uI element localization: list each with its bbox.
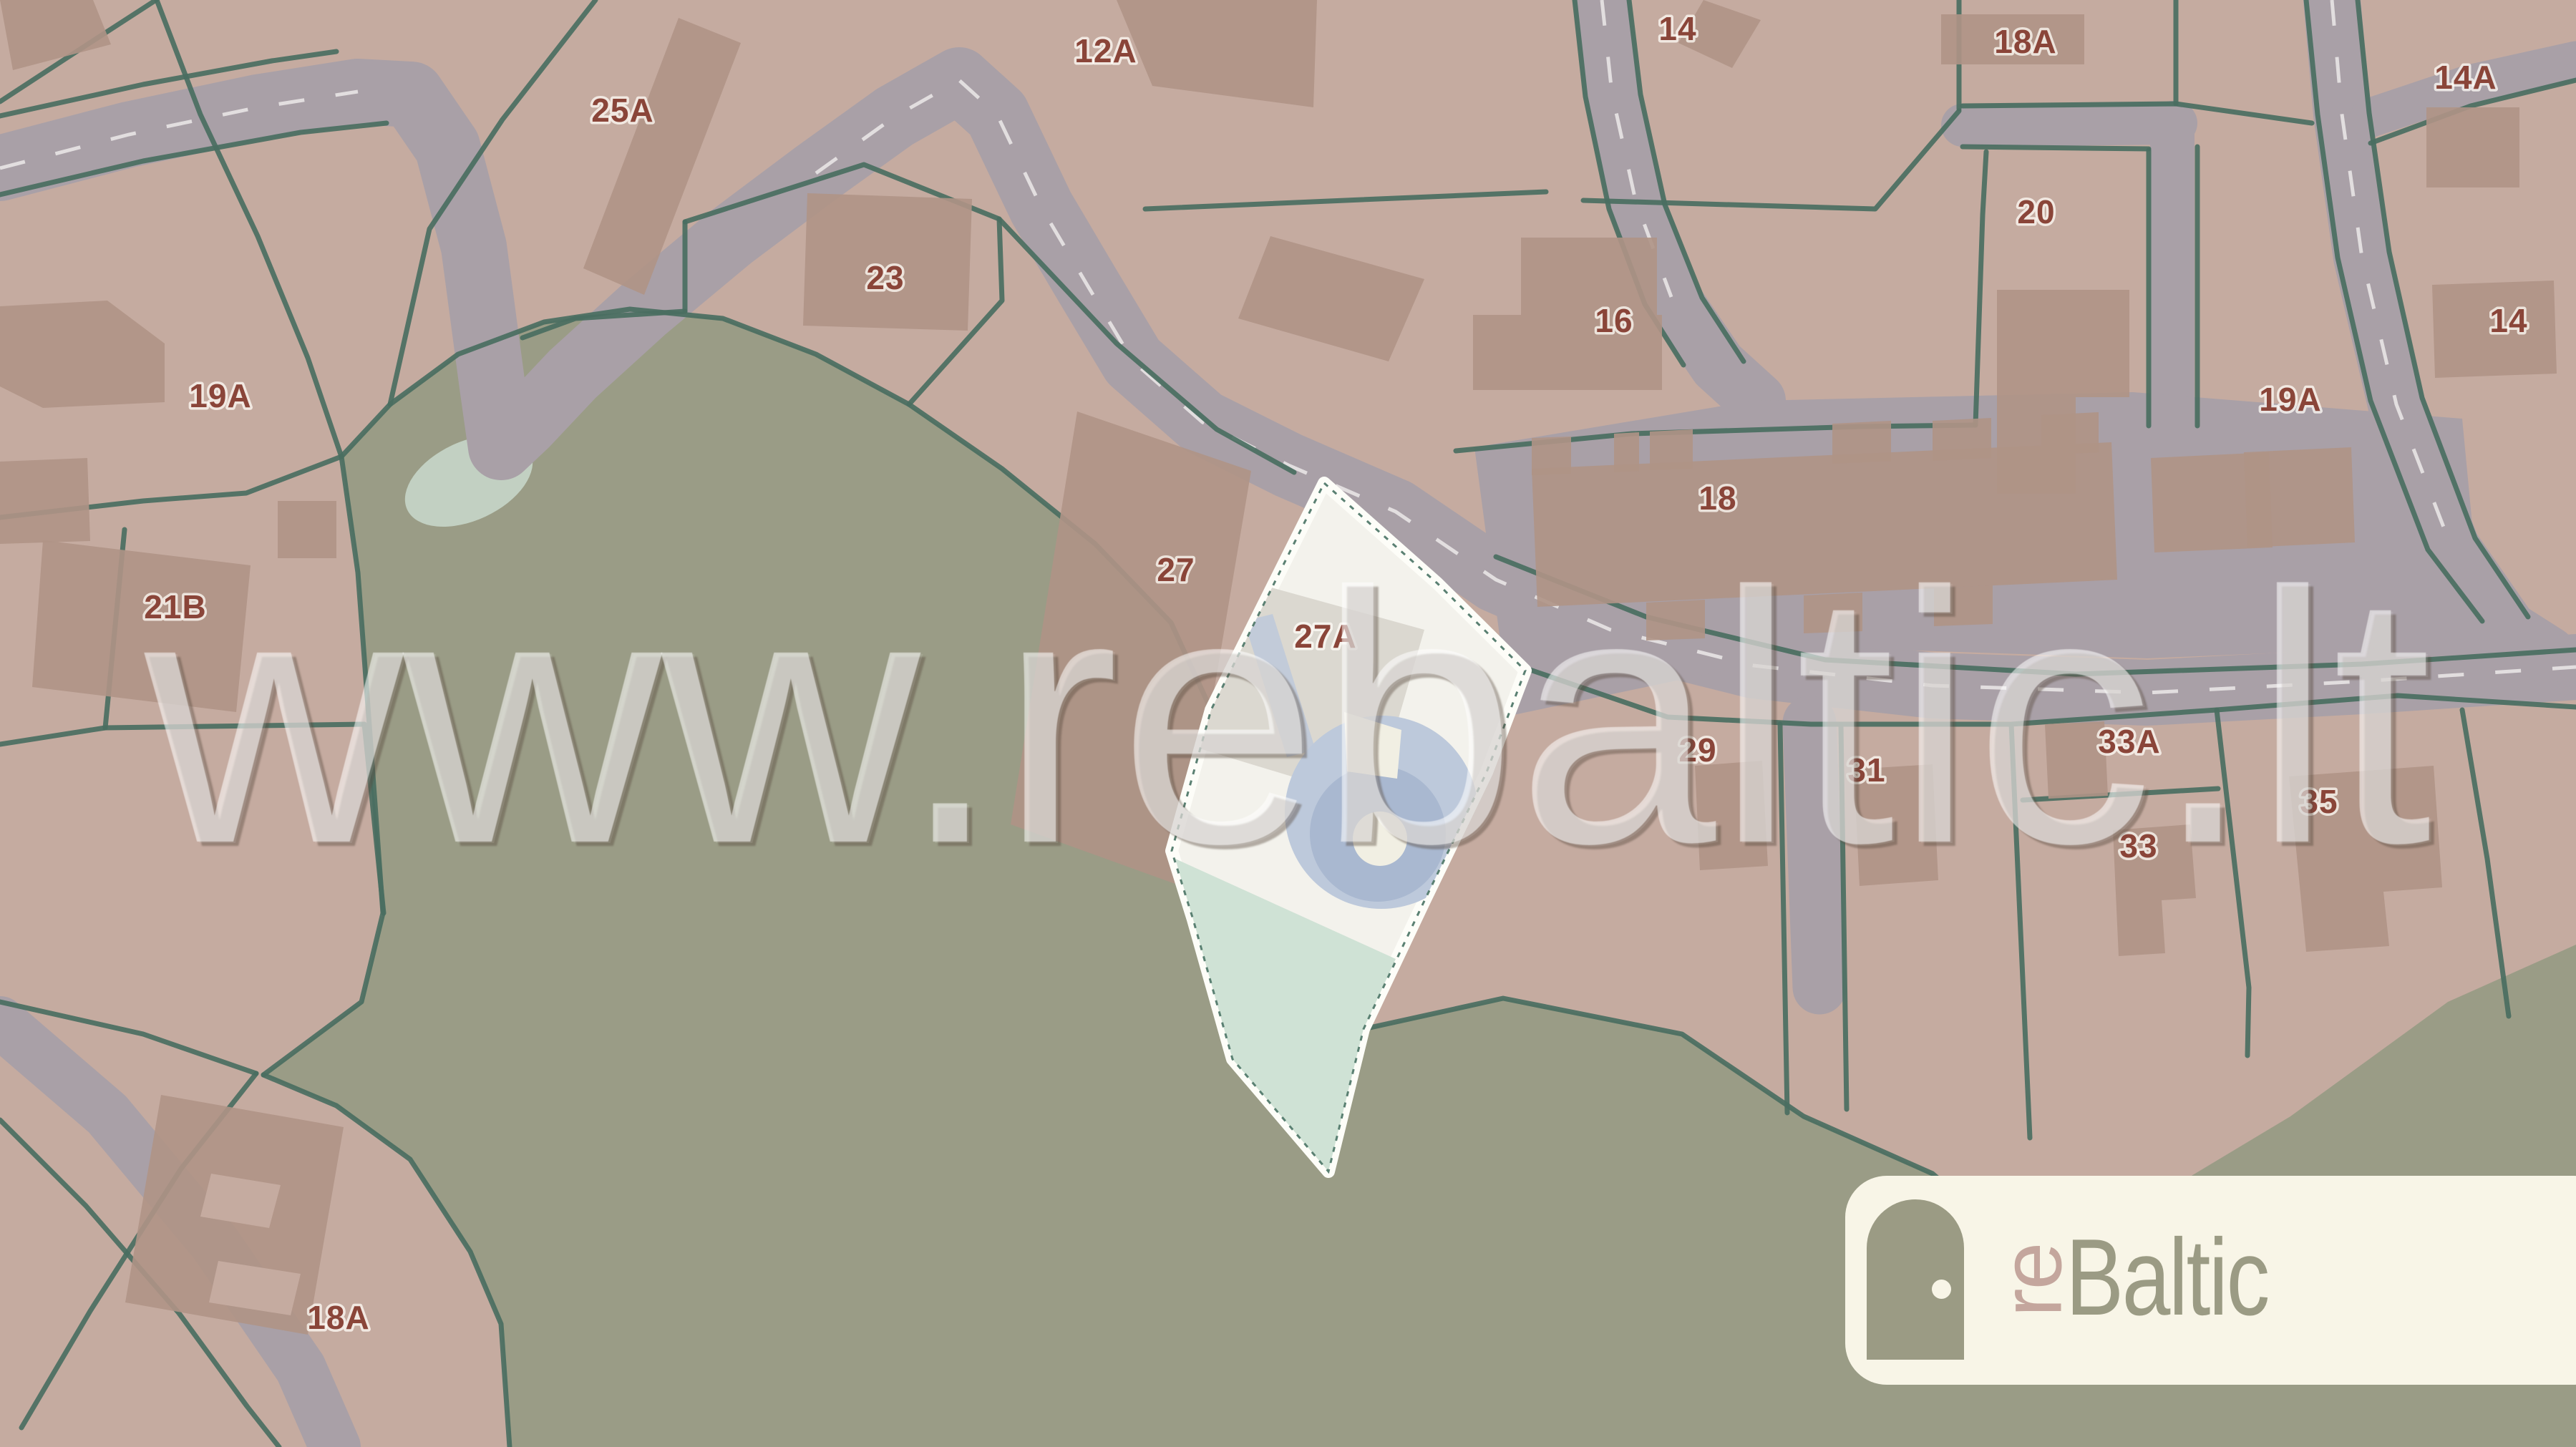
parcel-label-31: 31 (1847, 751, 1885, 789)
parcel-label-27: 27 (1157, 551, 1195, 588)
building (1934, 585, 1993, 626)
door-icon (1867, 1199, 1964, 1360)
building (1933, 418, 1991, 461)
parcel-label-18A: 18A (1994, 23, 2056, 60)
pond-islet (1353, 812, 1407, 866)
parcel-label-33: 33 (2119, 827, 2157, 864)
door-knob-icon (1932, 1280, 1951, 1299)
building (2244, 447, 2355, 547)
road (1809, 723, 1819, 988)
parcel-label-16: 16 (1595, 302, 1633, 339)
parcel-label-12A: 12A (1074, 32, 1137, 69)
building (2426, 107, 2519, 187)
building (1650, 429, 1693, 470)
parcel-label-27A: 27A (1294, 618, 1356, 655)
building (1832, 421, 1891, 464)
building (1804, 593, 1862, 633)
building (0, 458, 90, 544)
building (32, 540, 251, 712)
parcel-label-21B: 21B (144, 588, 206, 625)
parcel-label-18: 18 (1698, 479, 1736, 517)
parcel-label-20: 20 (2017, 193, 2055, 230)
parcel-label-18A: 18A (307, 1299, 369, 1336)
building (1646, 600, 1705, 640)
map-viewport: 25A12A1418A14A2316201419A19A182727A21B29… (0, 0, 2576, 1447)
parcel-label-14: 14 (2489, 302, 2527, 339)
parcel-label-25A: 25A (591, 92, 653, 129)
parcel-label-33A: 33A (2098, 723, 2160, 760)
building (1614, 432, 1639, 472)
building (278, 501, 336, 558)
brand-name: Baltic (2066, 1223, 2268, 1332)
parcel-label-14A: 14A (2434, 59, 2497, 96)
parcel-label-19A: 19A (189, 377, 251, 414)
parcel-border (105, 724, 364, 728)
brand-prefix-rotated: re (1988, 1200, 2074, 1360)
building (1695, 761, 1768, 870)
road (1963, 123, 2176, 125)
brand-logo-panel[interactable]: re Baltic (1845, 1176, 2576, 1385)
parcel-label-29: 29 (1678, 731, 1716, 769)
parcel-label-14: 14 (1658, 10, 1696, 47)
parcel-label-23: 23 (866, 259, 904, 296)
parcel-label-35: 35 (2300, 783, 2338, 820)
parcel-label-19A: 19A (2259, 381, 2321, 418)
parcel-border (1963, 147, 2149, 149)
building (1532, 437, 1571, 475)
